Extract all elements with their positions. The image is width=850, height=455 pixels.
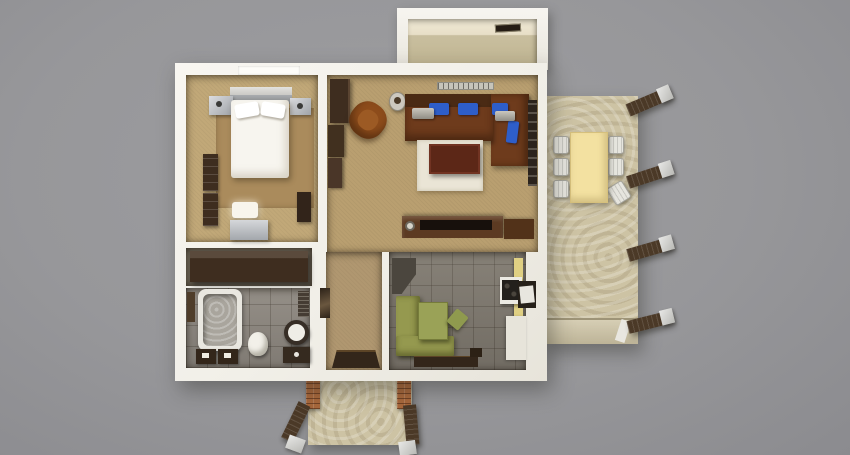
side-table (389, 92, 406, 111)
bedroom-dresser (230, 220, 268, 240)
living-tall-cabinet (330, 79, 350, 123)
hall-doormat (332, 350, 380, 368)
living-wall-cabinet-upper (328, 125, 344, 157)
terrace-chair-3 (553, 180, 569, 198)
balcony-vent-icon (495, 23, 521, 32)
media-cabinet (504, 219, 534, 239)
bathroom-radiator (298, 291, 309, 317)
sofa-cushion-silver-2 (495, 111, 515, 121)
kitchen-table (418, 302, 448, 340)
bathtub-basin (203, 294, 237, 346)
sofa-cushion-silver-1 (412, 108, 434, 119)
porch-beam-right (403, 404, 419, 445)
balcony (397, 8, 548, 70)
bedroom-window (238, 66, 300, 75)
bath-mat-2 (218, 349, 238, 364)
terrace-dining-table (570, 132, 608, 203)
kitchen-doormat (414, 356, 478, 367)
lamp-icon (216, 101, 222, 107)
bedroom-shelf-lower (203, 193, 218, 226)
vanity-tap (294, 352, 299, 357)
beam-cap (658, 160, 675, 178)
wardrobe (190, 251, 308, 282)
toilet (248, 332, 268, 356)
beam-cap (659, 308, 675, 326)
terrace (540, 96, 638, 344)
table-lamp (232, 202, 258, 218)
bedroom-stool (297, 192, 311, 222)
soap-icon (224, 353, 231, 358)
terrace-chair-5 (608, 158, 624, 176)
nightstand-left (209, 96, 233, 115)
lamp-icon (297, 103, 303, 109)
double-bed (231, 100, 289, 178)
terrace-chair-2 (553, 158, 569, 176)
terrace-chair-1 (553, 136, 569, 154)
living-radiator (437, 82, 494, 90)
side-table-top (394, 97, 401, 104)
nightstand-right (290, 98, 311, 115)
pillow-left (234, 101, 260, 119)
stove-cooktop (502, 280, 519, 300)
bathroom-vanity (283, 347, 310, 363)
terrace-door (528, 100, 537, 186)
terrace-chair-4 (608, 136, 624, 154)
bath-mat-1 (196, 349, 216, 364)
pillow-right (260, 101, 286, 119)
bathroom-shelf (187, 292, 195, 322)
washbasin (284, 320, 309, 345)
floor-plan-render (0, 0, 850, 455)
tv-speaker (405, 221, 415, 231)
kitchen-mat-small (470, 348, 482, 357)
beam-cap (658, 234, 675, 252)
kitchen-hatch-box (519, 285, 535, 303)
armchair-cushion (354, 106, 382, 134)
tv-lowboard (402, 216, 503, 238)
sofa-cushion-blue-2 (458, 103, 478, 115)
bedroom-shelf-upper (203, 154, 218, 191)
kitchen-counter-white (506, 316, 526, 360)
soap-icon (202, 353, 209, 358)
porch (280, 376, 440, 455)
hall-mirror (320, 288, 330, 318)
beam-cap (656, 84, 674, 103)
porch-pillar-left (306, 379, 320, 409)
porch-beam-right-cap (398, 440, 417, 455)
kitchen-hatch (518, 281, 536, 308)
pergola-beam-1 (625, 87, 671, 116)
tv (420, 220, 492, 230)
bathtub (198, 289, 242, 351)
coffee-table (429, 144, 480, 174)
porch-beam-left-cap (285, 435, 306, 454)
living-wall-cabinet-lower (328, 158, 342, 188)
